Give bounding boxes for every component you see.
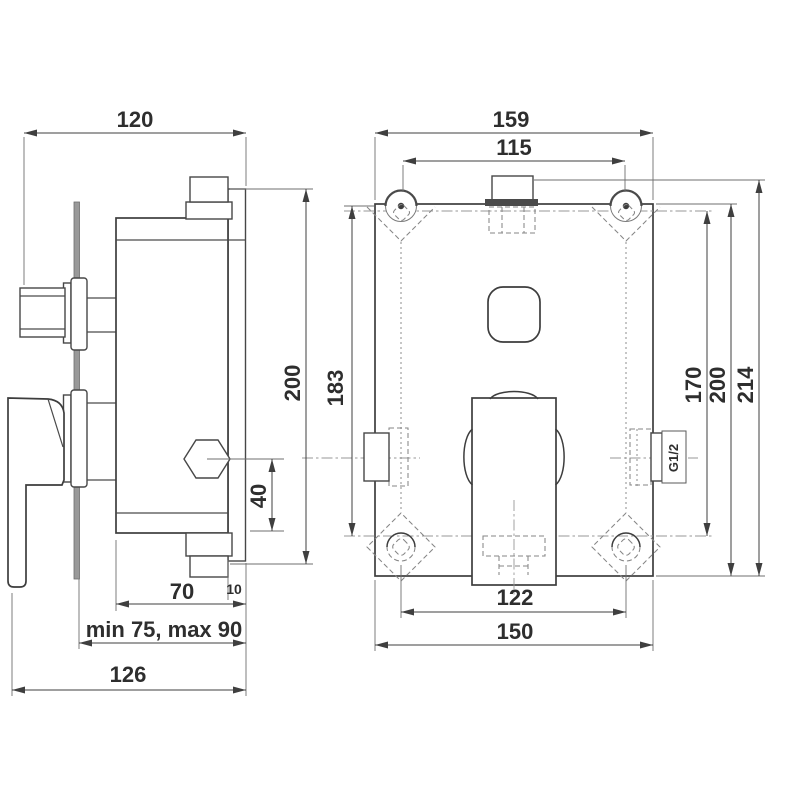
dim-label-150: 150 (497, 619, 534, 644)
bottom-fitting-base (186, 533, 232, 556)
top-fitting-base (186, 202, 232, 219)
technical-drawing: G1/2 120 200 40 70 (0, 0, 800, 800)
dim-screw-spacing-vertical: 170 (681, 211, 707, 536)
dim-label-minmax: min 75, max 90 (86, 617, 243, 642)
dim-label-200-front: 200 (705, 367, 730, 404)
bottom-fitting (190, 556, 228, 577)
valve-body (116, 218, 228, 533)
dim-label-10: 10 (226, 581, 242, 597)
lever-plate (472, 398, 556, 585)
dim-label-120: 120 (117, 107, 154, 132)
dim-label-159: 159 (493, 107, 530, 132)
dim-install-depth: min 75, max 90 (79, 579, 246, 649)
lower-sleeve (71, 390, 87, 487)
upper-union-nut (20, 288, 65, 337)
top-pipe (492, 176, 533, 200)
side-view (8, 177, 246, 587)
dim-total-depth: 126 (12, 593, 246, 696)
thread-label: G1/2 (666, 444, 681, 472)
top-fitting (190, 177, 228, 202)
dim-label-122: 122 (497, 585, 534, 610)
side-port-left (364, 433, 389, 481)
dim-height-left: 183 (323, 206, 374, 536)
dim-label-214: 214 (733, 366, 758, 403)
dim-label-40: 40 (246, 484, 271, 508)
dim-label-70: 70 (170, 579, 194, 604)
drawing-page: G1/2 120 200 40 70 (0, 0, 800, 800)
dim-label-170: 170 (681, 367, 706, 404)
dim-label-183: 183 (323, 370, 348, 407)
top-pipe-base (485, 199, 538, 206)
side-port-right (651, 433, 662, 481)
dim-label-115: 115 (496, 135, 532, 160)
cap-plate (228, 189, 246, 561)
dim-label-126: 126 (110, 662, 147, 687)
lever-handle (8, 398, 64, 587)
upper-sleeve (71, 278, 87, 350)
dim-label-200-side: 200 (280, 365, 305, 402)
front-view: G1/2 (302, 176, 712, 597)
diverter-knob (488, 287, 540, 342)
